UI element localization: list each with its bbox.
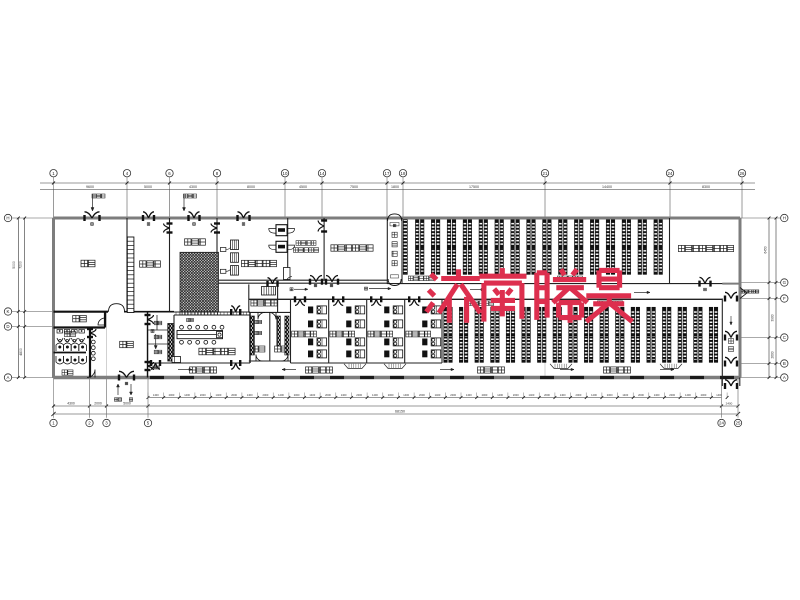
- svg-text:D: D: [6, 324, 9, 329]
- svg-text:17500: 17500: [469, 185, 479, 189]
- svg-text:3900: 3900: [771, 314, 775, 321]
- svg-text:7500: 7500: [350, 185, 358, 189]
- svg-text:1400: 1400: [184, 393, 190, 397]
- svg-text:2000: 2000: [513, 393, 519, 397]
- svg-text:21: 21: [543, 171, 548, 176]
- svg-text:2000: 2000: [544, 393, 550, 397]
- svg-text:2000: 2000: [294, 393, 300, 397]
- svg-text:6450: 6450: [764, 246, 768, 253]
- svg-text:1400: 1400: [560, 393, 566, 397]
- svg-text:14400: 14400: [602, 185, 612, 189]
- svg-text:G: G: [783, 280, 787, 285]
- svg-text:1400: 1400: [435, 393, 441, 397]
- svg-text:1800: 1800: [391, 185, 399, 189]
- svg-text:A: A: [7, 375, 10, 380]
- svg-text:68150: 68150: [395, 410, 405, 414]
- svg-text:2000: 2000: [325, 393, 331, 397]
- svg-text:4800: 4800: [19, 348, 23, 356]
- svg-text:2000: 2000: [607, 393, 613, 397]
- svg-text:1400: 1400: [278, 393, 284, 397]
- svg-text:2000: 2000: [356, 393, 362, 397]
- svg-text:18: 18: [401, 171, 406, 176]
- svg-text:1400: 1400: [341, 393, 347, 397]
- svg-text:K: K: [7, 309, 10, 314]
- svg-text:2000: 2000: [200, 393, 206, 397]
- svg-text:24: 24: [719, 421, 724, 426]
- svg-text:2000: 2000: [231, 393, 237, 397]
- svg-text:2000: 2000: [576, 393, 582, 397]
- svg-text:8000: 8000: [247, 185, 255, 189]
- svg-text:H: H: [6, 216, 9, 221]
- svg-text:1400: 1400: [497, 393, 503, 397]
- svg-text:4500: 4500: [299, 185, 307, 189]
- svg-text:25: 25: [736, 421, 741, 426]
- svg-text:2000: 2000: [263, 393, 269, 397]
- svg-text:H: H: [783, 216, 786, 221]
- svg-text:5000: 5000: [144, 185, 152, 189]
- svg-text:14: 14: [320, 171, 325, 176]
- svg-text:4300: 4300: [67, 402, 75, 406]
- svg-text:24: 24: [668, 171, 673, 176]
- svg-text:10: 10: [283, 171, 288, 176]
- svg-text:2000: 2000: [388, 393, 394, 397]
- svg-text:2000: 2000: [419, 393, 425, 397]
- svg-text:C: C: [783, 335, 786, 340]
- svg-text:2400: 2400: [726, 402, 733, 406]
- svg-text:8300: 8300: [702, 185, 710, 189]
- svg-text:1400: 1400: [622, 393, 628, 397]
- svg-text:7200: 7200: [19, 261, 23, 269]
- svg-text:17: 17: [385, 171, 390, 176]
- svg-text:26: 26: [740, 171, 745, 176]
- svg-text:1400: 1400: [247, 393, 253, 397]
- svg-text:1400: 1400: [309, 393, 315, 397]
- svg-text:F: F: [783, 296, 786, 301]
- svg-text:2000: 2000: [450, 393, 456, 397]
- svg-text:2000: 2000: [482, 393, 488, 397]
- svg-text:2000: 2000: [669, 393, 675, 397]
- svg-text:2000: 2000: [638, 393, 644, 397]
- svg-text:1400: 1400: [216, 393, 222, 397]
- svg-text:2600: 2600: [771, 351, 775, 358]
- svg-text:2000: 2000: [169, 393, 175, 397]
- svg-text:1400: 1400: [403, 393, 409, 397]
- svg-text:1400: 1400: [153, 393, 159, 397]
- svg-text:4300: 4300: [189, 185, 197, 189]
- svg-text:1400: 1400: [466, 393, 472, 397]
- svg-text:B: B: [783, 361, 786, 366]
- svg-text:1400: 1400: [591, 393, 597, 397]
- svg-text:A: A: [783, 375, 786, 380]
- svg-text:1400: 1400: [685, 393, 691, 397]
- svg-text:5000: 5000: [12, 261, 16, 269]
- svg-text:1400: 1400: [372, 393, 378, 397]
- svg-text:1400: 1400: [654, 393, 660, 397]
- svg-text:2000: 2000: [701, 393, 707, 397]
- svg-text:5000: 5000: [123, 402, 131, 406]
- svg-text:9600: 9600: [86, 185, 94, 189]
- svg-text:1400: 1400: [529, 393, 535, 397]
- svg-text:2000: 2000: [94, 402, 102, 406]
